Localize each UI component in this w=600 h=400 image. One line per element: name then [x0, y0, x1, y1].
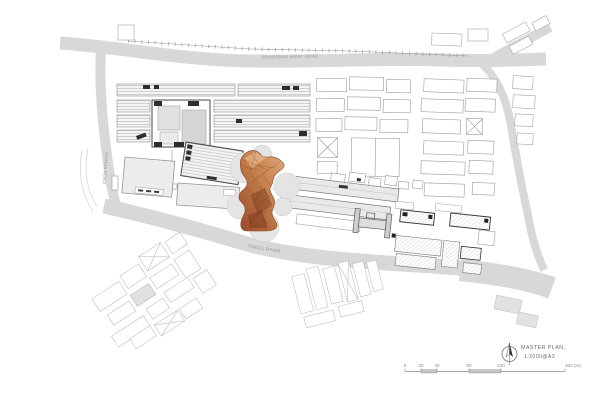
urban-fabric-south	[291, 252, 388, 328]
scale-tick-0: 0	[404, 363, 407, 368]
buildings-north-of-road	[118, 12, 555, 54]
scale-tick-200: 200 (m)	[565, 363, 581, 368]
scale-tick-120: 120	[497, 363, 505, 368]
site-plan-drawing: DONGFENG WEST ROAD XINHUA ROAD TANGZI RI…	[0, 0, 600, 400]
drawing-scale-note: 1:2000@A3	[524, 354, 555, 360]
top-road-label: DONGFENG WEST ROAD	[261, 54, 318, 60]
blocks-southeast-corner	[492, 295, 541, 328]
residential-rows-west-cluster	[315, 76, 411, 177]
scale-tick-20: 20	[418, 363, 424, 368]
north-arrow-icon	[502, 343, 517, 365]
riverbank-curves	[80, 148, 97, 211]
scale-bar: 0 20 40 80 120 200 (m)	[404, 363, 582, 373]
gray-hall-west	[122, 157, 175, 197]
industrial-sheds	[117, 84, 310, 142]
small-annex	[112, 176, 118, 190]
master-plan-canvas: DONGFENG WEST ROAD XINHUA ROAD TANGZI RI…	[0, 0, 600, 400]
drawing-title: MASTER PLAN,	[521, 345, 565, 351]
scale-tick-80: 80	[466, 363, 472, 368]
scale-tick-40: 40	[434, 363, 440, 368]
urban-fabric-southwest	[83, 230, 223, 359]
residential-rows-east-cluster	[418, 77, 498, 199]
